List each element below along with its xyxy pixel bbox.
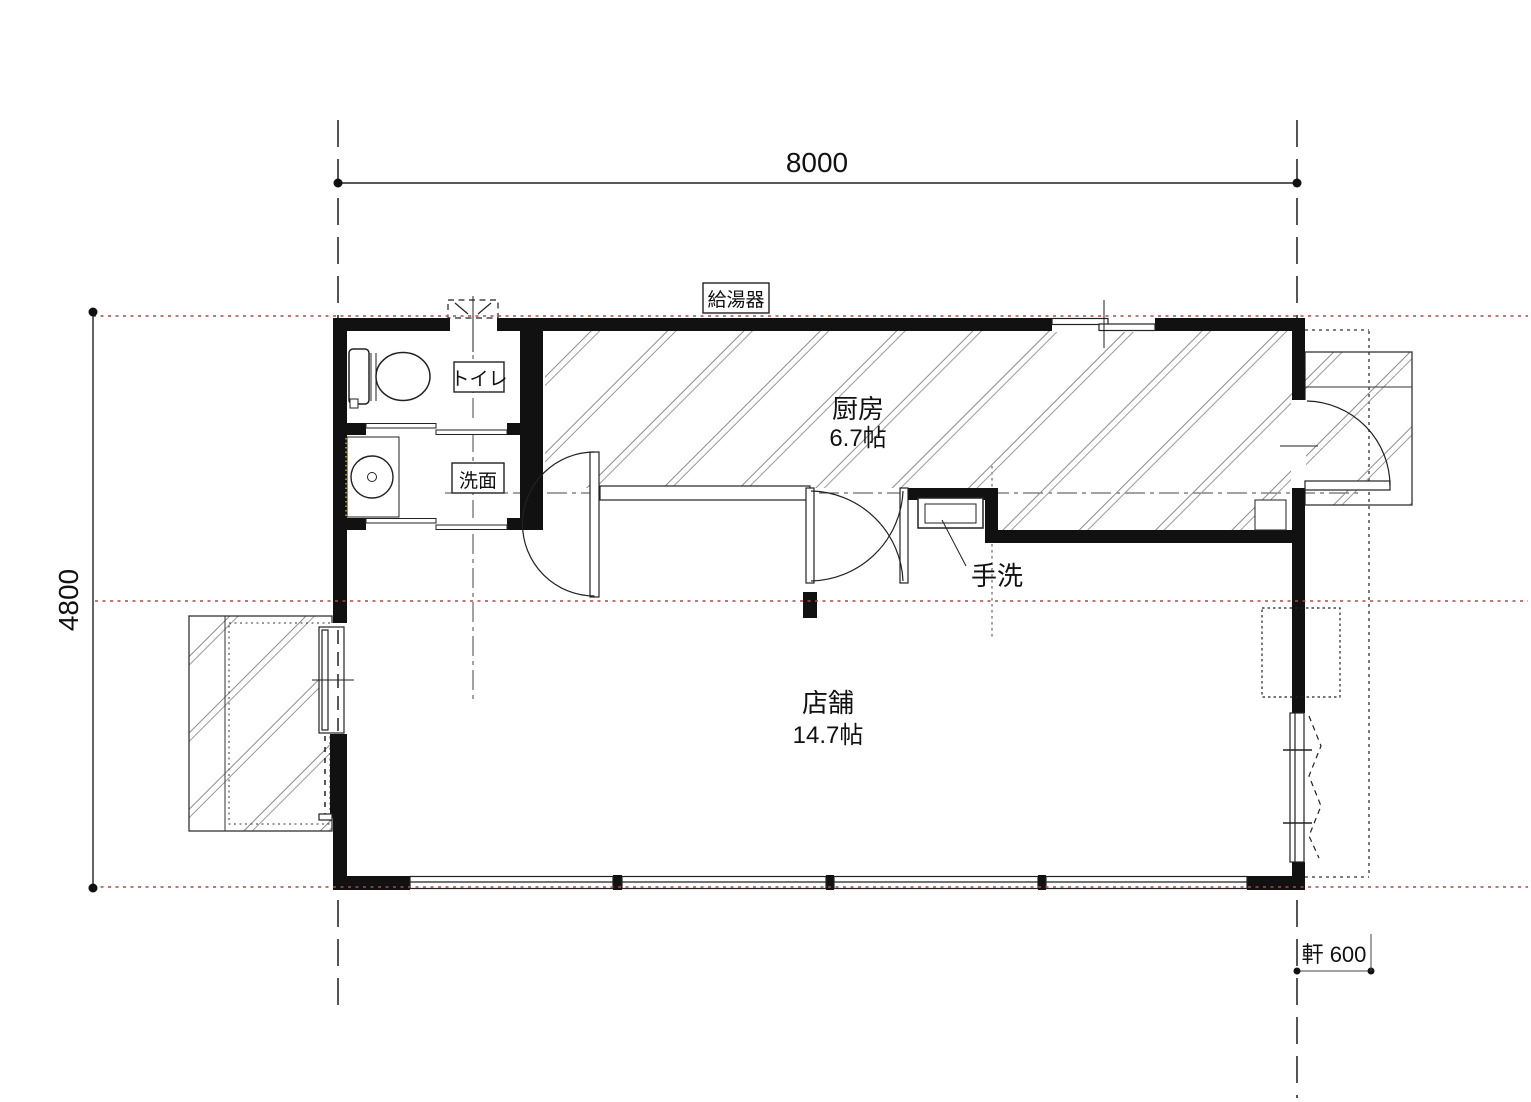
shop-area: 14.7帖 [793, 722, 864, 749]
dimension-eave-value: 軒 600 [1302, 942, 1367, 967]
water-heater-label: 給湯器 [703, 283, 769, 313]
wall-handwash-east [985, 488, 998, 543]
handwash-label: 手洗 [971, 561, 1023, 591]
service-counter [600, 486, 810, 500]
kitchen-label: 厨房 6.7帖 [829, 394, 886, 452]
svg-text:給湯器: 給湯器 [707, 289, 764, 311]
dimension-width: 8000 [334, 147, 1302, 188]
kitchen-area: 6.7帖 [829, 425, 886, 452]
partition-end-box [1255, 500, 1286, 530]
floor-plan-page: 8000 4800 軒 600 給湯器 トイレ 洗面 厨房 6.7帖 [0, 0, 1531, 1102]
louver-opening-marks [1309, 716, 1321, 858]
east-swing-door [806, 488, 908, 583]
dimension-height-value: 4800 [53, 569, 84, 631]
kitchen-name: 厨房 [832, 394, 884, 424]
east-louver-window [1283, 713, 1321, 862]
toilet-label: トイレ [450, 362, 507, 392]
dimension-height: 4800 [53, 308, 98, 893]
shop-label: 店舗 14.7帖 [793, 688, 864, 749]
left-porch [189, 616, 332, 831]
hatched-regions [189, 331, 1412, 831]
floor-plan-canvas: 8000 4800 軒 600 給湯器 トイレ 洗面 厨房 6.7帖 [0, 0, 1531, 1102]
dimension-width-value: 8000 [786, 147, 848, 178]
structural-post [803, 592, 817, 618]
grid-lines [338, 120, 1297, 1098]
washroom-sliding-door [366, 519, 436, 524]
toilet-sliding-door [366, 424, 436, 429]
svg-text:洗面: 洗面 [459, 470, 497, 492]
toilet-fixture [349, 349, 430, 408]
dimension-eave: 軒 600 [1294, 934, 1375, 975]
washbasin [346, 437, 399, 517]
washroom-label: 洗面 [452, 463, 504, 493]
wall-kitchen-shop [998, 530, 1292, 543]
shop-name: 店舗 [802, 688, 854, 718]
svg-text:トイレ: トイレ [450, 369, 507, 390]
handwash-sink [918, 498, 983, 566]
wall-toilet-east [520, 330, 543, 530]
